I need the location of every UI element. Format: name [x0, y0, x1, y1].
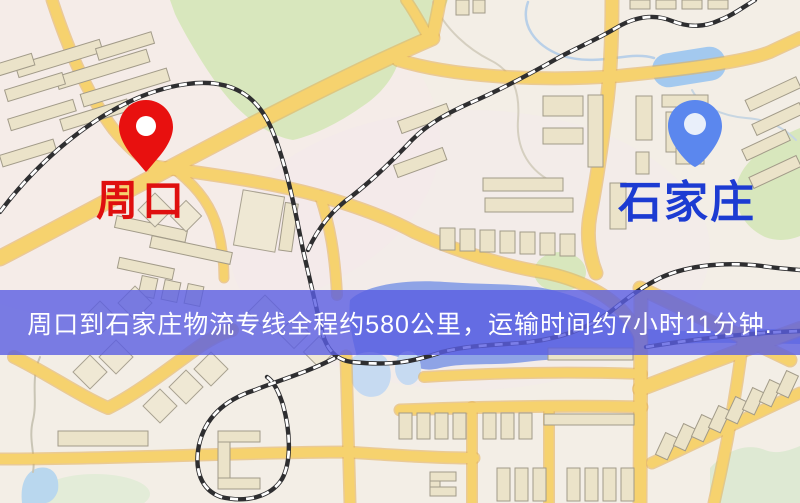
destination-label: 石家庄: [618, 178, 756, 227]
route-info-banner: 周口到石家庄物流专线全程约580公里，运输时间约7小时11分钟.: [0, 290, 800, 355]
route-info-text: 周口到石家庄物流专线全程约580公里，运输时间约7小时11分钟.: [27, 305, 773, 341]
map-view: 周口 石家庄 周口到石家庄物流专线全程约580公里，运输时间约7小时11分钟.: [0, 0, 800, 503]
map-canvas: 周口 石家庄: [0, 0, 800, 503]
origin-label: 周口: [96, 177, 188, 224]
